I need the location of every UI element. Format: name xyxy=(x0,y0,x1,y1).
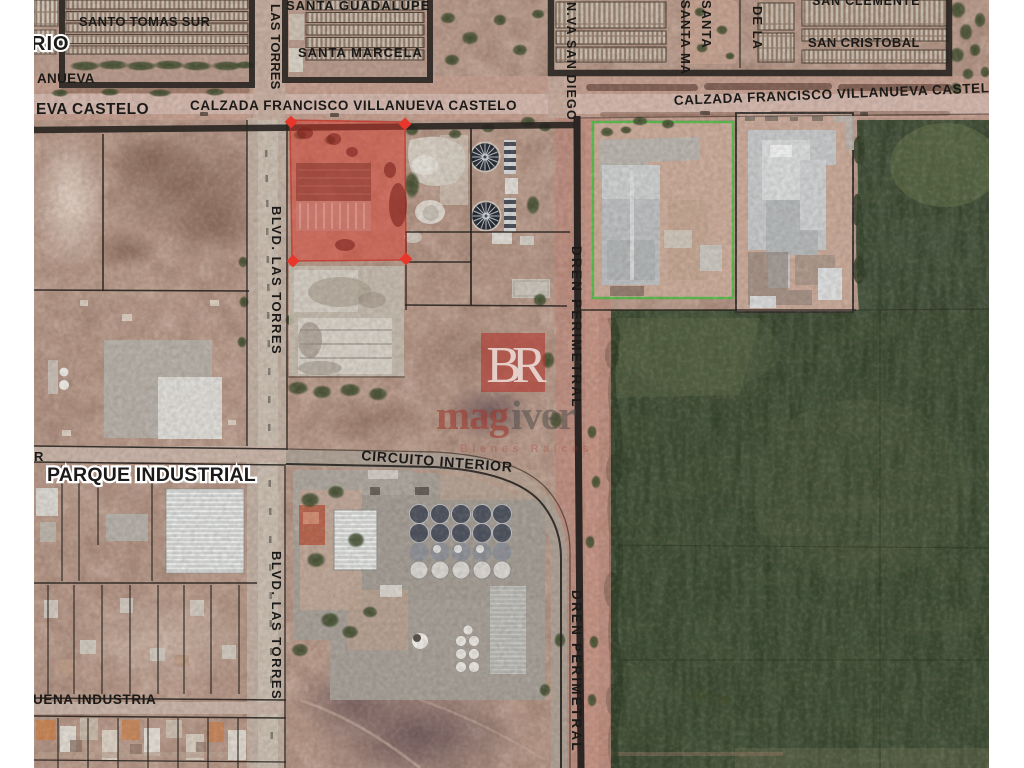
svg-text:BLVD. LAS TORRES: BLVD. LAS TORRES xyxy=(269,206,284,355)
svg-text:BLVD. LAS TORRES: BLVD. LAS TORRES xyxy=(269,551,284,700)
svg-text:SAN CRISTOBAL: SAN CRISTOBAL xyxy=(808,35,920,50)
svg-text:R: R xyxy=(34,449,44,464)
svg-text:ANUEVA: ANUEVA xyxy=(37,71,95,86)
svg-text:SAN CLEMENTE: SAN CLEMENTE xyxy=(812,0,920,8)
svg-text:EVA CASTELO: EVA CASTELO xyxy=(36,101,149,118)
svg-text:PARQUE INDUSTRIAL: PARQUE INDUSTRIAL xyxy=(47,464,256,486)
svg-text:SANTA: SANTA xyxy=(699,0,714,49)
svg-text:SANTA GUADALUPE: SANTA GUADALUPE xyxy=(286,0,430,13)
svg-text:DREN PERIMETRAL: DREN PERIMETRAL xyxy=(569,590,584,753)
svg-text:Bienes Raíces: Bienes Raíces xyxy=(460,443,593,455)
svg-text:DE LA: DE LA xyxy=(750,6,765,50)
svg-text:LAS TORRES: LAS TORRES xyxy=(268,4,283,90)
svg-text:RIO: RIO xyxy=(31,33,70,55)
svg-text:iver: iver xyxy=(511,392,576,438)
svg-text:DREN PERIMETRAL: DREN PERIMETRAL xyxy=(569,246,584,409)
svg-text:UENA INDUSTRIA: UENA INDUSTRIA xyxy=(33,692,156,707)
svg-text:SANTA MA: SANTA MA xyxy=(678,0,693,75)
svg-text:N.VA SAN DIEGO: N.VA SAN DIEGO xyxy=(564,2,578,121)
svg-text:SANTO TOMAS SUR: SANTO TOMAS SUR xyxy=(79,14,210,29)
svg-text:mag: mag xyxy=(436,392,510,438)
svg-text:CALZADA FRANCISCO VILLANUEVA C: CALZADA FRANCISCO VILLANUEVA CASTELO xyxy=(190,98,517,113)
svg-text:SANTA MARCELA: SANTA MARCELA xyxy=(298,45,423,60)
